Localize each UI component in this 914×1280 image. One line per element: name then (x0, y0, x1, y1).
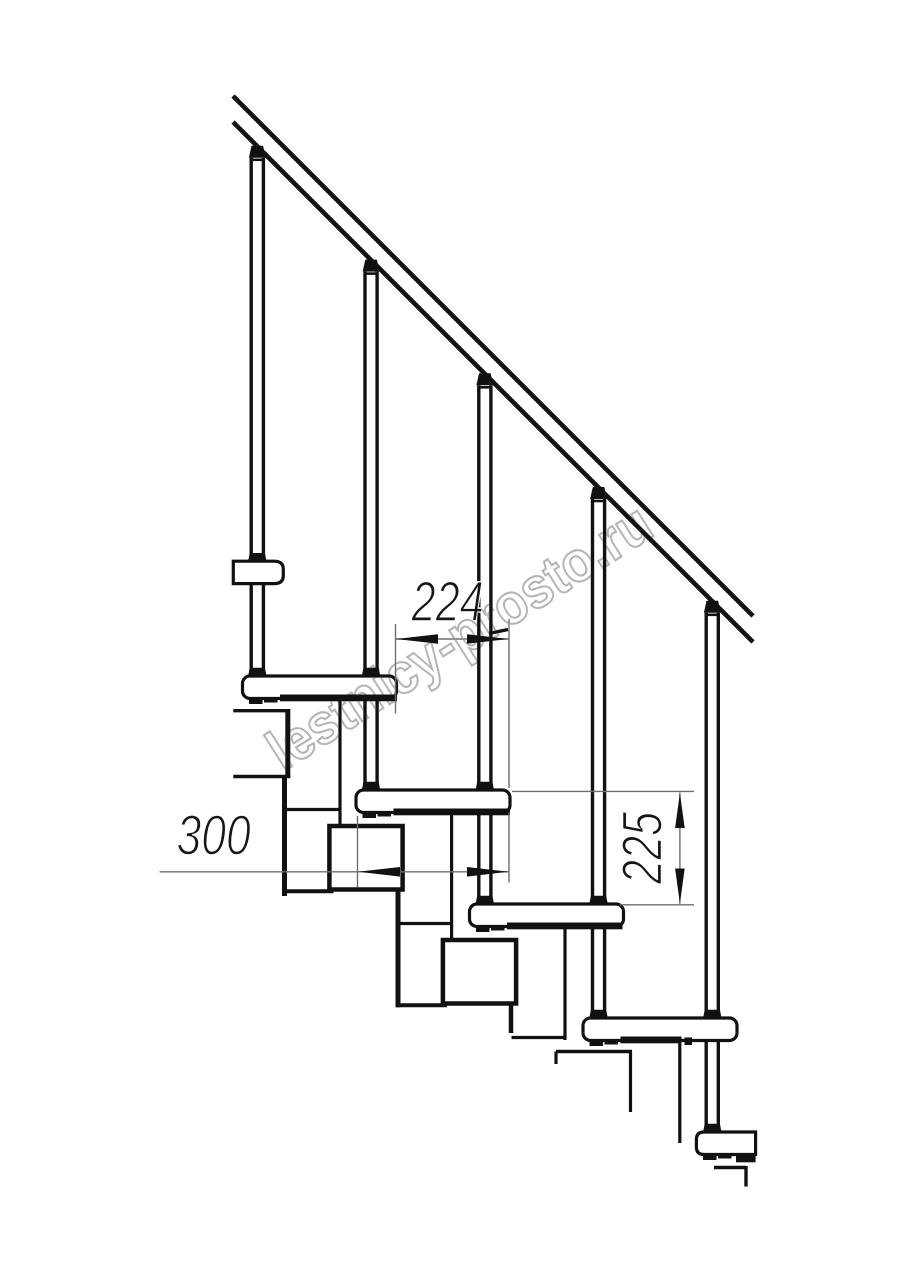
svg-text:300: 300 (177, 803, 251, 867)
svg-text:225: 225 (610, 811, 674, 885)
